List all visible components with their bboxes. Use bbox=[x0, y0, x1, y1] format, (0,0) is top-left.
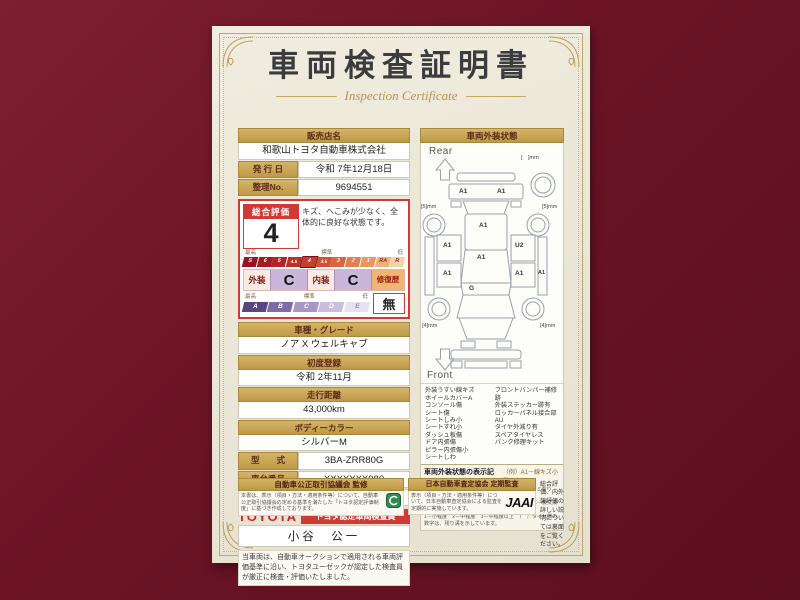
grade-seg: E bbox=[343, 302, 370, 312]
footer: 自動車公正取引協議会 監修 本書は、表示（項目・方法・適用条件等）について、自動… bbox=[238, 478, 564, 551]
damage-mark: A1 bbox=[459, 189, 467, 196]
tire-depth-front-right: [4]mm bbox=[540, 324, 555, 330]
legend-item: ドア内張傷 bbox=[425, 439, 491, 446]
type-label: 型 式 bbox=[238, 452, 298, 469]
mileage-label: 走行距離 bbox=[238, 387, 410, 402]
grade-label-low: 低 bbox=[362, 295, 368, 301]
legend-item: ホイールカバーA bbox=[425, 395, 491, 402]
damage-mark: A1 bbox=[479, 223, 487, 230]
issue-date-label: 発 行 日 bbox=[238, 161, 298, 178]
ref-no-value: 9694551 bbox=[298, 179, 410, 196]
mileage-value: 43,000km bbox=[238, 402, 410, 418]
body-color-value: シルバーM bbox=[238, 435, 410, 451]
model-value: ノア X ウェルキャブ bbox=[238, 337, 410, 353]
condition-legend: 外装うすい線キズ ホイールカバーA コンソール傷 シート傷 シートしみ小 シート… bbox=[421, 383, 563, 463]
jaai-block: 日本自動車査定協会 定期監査 表示（項目・方法・適用条件等）について、日本自動車… bbox=[408, 478, 536, 516]
interior-grade-value: C bbox=[334, 270, 372, 290]
grade-seg: A bbox=[242, 302, 269, 312]
scale-seg: 1 bbox=[360, 257, 376, 267]
tire-depth-rear-right: [5]mm bbox=[542, 205, 557, 211]
exterior-condition-title: 車両外装状態 bbox=[420, 128, 564, 143]
certificate-title: 車両検査証明書 bbox=[212, 50, 590, 81]
overall-score-box: 総合評価 4 bbox=[243, 204, 299, 248]
scale-seg-selected: 4 bbox=[301, 257, 317, 267]
score-scale-bar: S 6 5 4.5 4 3.5 3 2 1 RA R bbox=[243, 257, 405, 267]
first-registration-value: 令和 2年11月 bbox=[238, 370, 410, 386]
interior-grade-label: 内装 bbox=[308, 270, 334, 290]
fair-trade-council-text: 本書は、表示（項目・方法・適用条件等）について、自動車公正取引協議会の定める基準… bbox=[241, 493, 383, 513]
scale-seg: R bbox=[389, 257, 405, 267]
car-condition-diagram: Rear Front A1 A1 A1 A1 A1 U2 A1 A1 A1 G … bbox=[421, 143, 563, 383]
damage-mark: A1 bbox=[538, 271, 545, 277]
jaai-text: 表示（項目・方法・適用条件等）について、日本自動車査定協会による監査を定期的に実… bbox=[411, 493, 502, 513]
damage-mark: A1 bbox=[477, 255, 485, 262]
legend-item: シートすれ小 bbox=[425, 424, 491, 431]
scale-seg: S bbox=[242, 257, 258, 267]
grade-seg: C bbox=[293, 302, 320, 312]
front-direction-label: Front bbox=[427, 370, 453, 381]
scale-label-mid: 標準 bbox=[321, 251, 332, 257]
grade-scale: 最高 標準 低 A B C D E bbox=[243, 293, 370, 314]
scale-seg: 2 bbox=[345, 257, 361, 267]
repair-history-label: 修復歴 bbox=[372, 270, 404, 290]
legend-item: ピラー内張傷小 bbox=[425, 447, 491, 454]
legend-item: シートしわ bbox=[425, 454, 491, 461]
legend-item: パンク修理キット bbox=[495, 439, 559, 446]
tire-depth-front-left: [4]mm bbox=[422, 324, 437, 330]
first-registration-label: 初度登録 bbox=[238, 355, 410, 370]
fair-trade-mark-icon bbox=[386, 493, 401, 508]
jaai-logo: JAAI bbox=[505, 495, 533, 510]
exterior-grade-value: C bbox=[270, 270, 308, 290]
rear-direction-label: Rear bbox=[429, 146, 453, 157]
certificate-subtitle: Inspection Certificate bbox=[276, 88, 526, 104]
issue-date-value: 令和 7年12月18日 bbox=[298, 161, 410, 178]
damage-mark: A1 bbox=[443, 271, 451, 278]
damage-mark: A1 bbox=[443, 243, 451, 250]
body-color-label: ボディーカラー bbox=[238, 420, 410, 435]
scale-label-high: 最高 bbox=[245, 251, 256, 257]
scale-seg: 4.5 bbox=[286, 257, 302, 267]
overall-score-label: 総合評価 bbox=[244, 205, 298, 219]
legend-item: ロッカーパネル接合部AU bbox=[495, 410, 559, 425]
grade-seg: D bbox=[318, 302, 345, 312]
legend-column-left: 外装うすい線キズ ホイールカバーA コンソール傷 シート傷 シートしみ小 シート… bbox=[425, 387, 491, 461]
certificate-paper: 車両検査証明書 Inspection Certificate 販売店名 和歌山ト… bbox=[212, 26, 590, 563]
evaluation-comment: キズ、へこみが少なく、全体的に良好な状態です。 bbox=[302, 204, 405, 248]
legend-column-right: フロントバンパー補修跡 外装ステッカー跡有 ロッカーパネル接合部AU タイヤ外減… bbox=[495, 387, 559, 461]
damage-mark: U2 bbox=[515, 243, 523, 250]
damage-mark: A1 bbox=[497, 189, 505, 196]
scale-labels: 最高 標準 低 bbox=[243, 251, 405, 257]
exterior-grade-label: 外装 bbox=[244, 270, 270, 290]
dealer-label: 販売店名 bbox=[238, 128, 410, 143]
damage-mark: G bbox=[469, 286, 474, 293]
grade-label-high: 最高 bbox=[245, 295, 256, 301]
fair-trade-council-title: 自動車公正取引協議会 監修 bbox=[238, 478, 404, 492]
ref-no-label: 整理No. bbox=[238, 179, 298, 196]
scale-label-low: 低 bbox=[397, 251, 403, 257]
back-side-note: 総合評価、内外装評価の詳しい説明については裏面をご覧ください。 bbox=[540, 478, 564, 551]
car-top-view-drawing bbox=[421, 143, 563, 383]
damage-mark: A1 bbox=[515, 271, 523, 278]
overall-score-value: 4 bbox=[244, 219, 298, 247]
type-value: 3BA-ZRR80G bbox=[298, 452, 410, 469]
spare-tire-depth: [ ]mm bbox=[521, 156, 539, 162]
legend-item: コンソール傷 bbox=[425, 402, 491, 409]
tire-depth-rear-left: [5]mm bbox=[421, 205, 436, 211]
photo-background: { "page": { "title": "車両検査証明書", "subtitl… bbox=[0, 0, 800, 600]
certification-note: 当車両は、自動車オークションで適用される車両評価基準に沿い、トヨタユーゼックが認… bbox=[238, 550, 410, 585]
grade-seg: B bbox=[267, 302, 294, 312]
model-label: 車種・グレード bbox=[238, 322, 410, 337]
dealer-name: 和歌山トヨタ自動車株式会社 bbox=[238, 143, 410, 159]
grade-label-mid: 標準 bbox=[304, 295, 315, 301]
legend-item: 外装ステッカー跡有 bbox=[495, 402, 559, 409]
legend-item: 外装うすい線キズ bbox=[425, 387, 491, 394]
legend-item: フロントバンパー補修跡 bbox=[495, 387, 559, 402]
jaai-title: 日本自動車査定協会 定期監査 bbox=[408, 478, 536, 491]
legend-item: タイヤ外減り有 bbox=[495, 424, 559, 431]
repair-history-value: 無 bbox=[373, 293, 405, 314]
legend-item: シート傷 bbox=[425, 410, 491, 417]
evaluation-card: 総合評価 4 キズ、へこみが少なく、全体的に良好な状態です。 最高 標準 低 S… bbox=[238, 199, 410, 319]
fair-trade-council-block: 自動車公正取引協議会 監修 本書は、表示（項目・方法・適用条件等）について、自動… bbox=[238, 478, 404, 517]
